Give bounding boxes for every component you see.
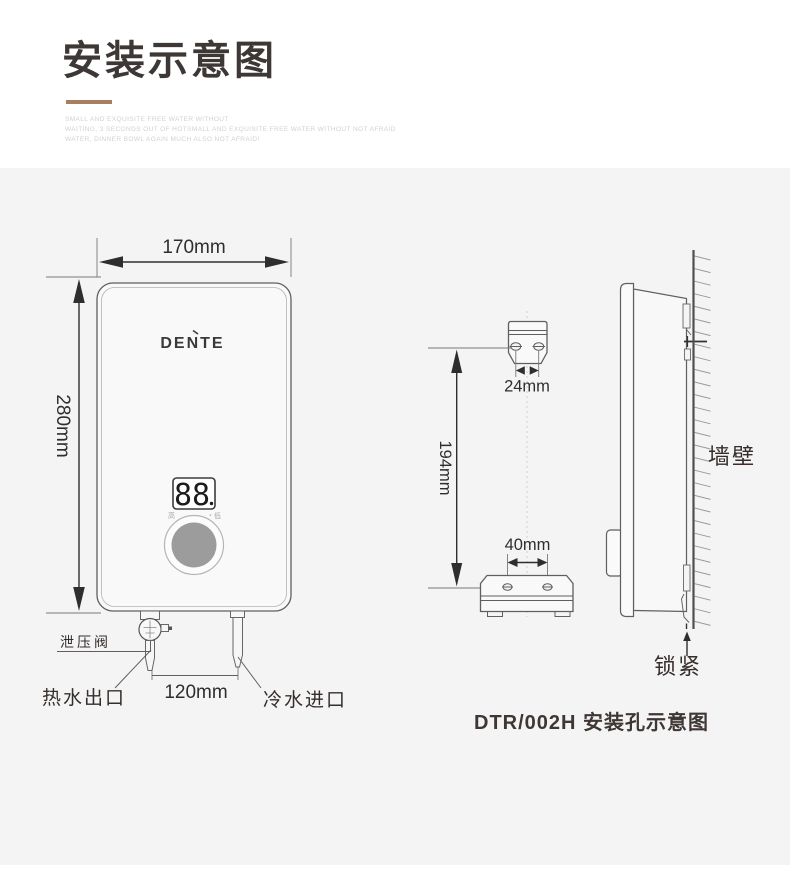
installation-diagram-canvas: 170mm 280mm DENTE 88 高	[0, 0, 790, 880]
dim-24mm-label: 24mm	[504, 378, 550, 396]
side-view-caption: DTR/002H 安装孔示意图	[474, 710, 709, 734]
knob-label-low: 低	[214, 511, 221, 520]
knob-dot	[210, 514, 212, 516]
display-dot	[210, 502, 213, 505]
relief-valve-label: 泄压阀	[60, 634, 111, 650]
wall-label: 墙壁	[708, 444, 756, 469]
dim-width-label: 170mm	[162, 237, 225, 258]
side-panel	[634, 289, 687, 612]
hot-water-outlet-label: 热水出口	[42, 687, 126, 709]
dim-height-label: 280mm	[52, 394, 73, 457]
heater-body: DENTE 88 高 低	[97, 283, 291, 611]
valve-nozzle	[161, 625, 169, 632]
top-hook-lower	[685, 349, 691, 360]
display-value: 88	[174, 478, 210, 513]
top-hook	[683, 304, 690, 328]
dim-194mm-label: 194mm	[436, 440, 454, 495]
knob-label-high: 高	[168, 511, 175, 520]
knob	[172, 523, 217, 568]
product-detail-page: 安装示意图 SMALL AND EXQUISITE FREE WATER WIT…	[0, 0, 790, 880]
front-face-band	[621, 284, 634, 617]
cold-pipe-cap	[231, 611, 245, 618]
valve-nozzle-tip	[169, 627, 173, 631]
cold-water-inlet-label: 冷水进口	[263, 689, 347, 711]
cold-water-pipe	[233, 618, 243, 668]
dim-pipe-spacing-label: 120mm	[164, 682, 227, 703]
brand-logo: DENTE	[160, 335, 224, 352]
dim-40mm-label: 40mm	[505, 536, 551, 554]
top-bracket	[509, 322, 548, 364]
lock-label: 锁紧	[654, 654, 702, 679]
bottom-hook	[684, 565, 691, 591]
bottom-bracket	[481, 576, 574, 617]
